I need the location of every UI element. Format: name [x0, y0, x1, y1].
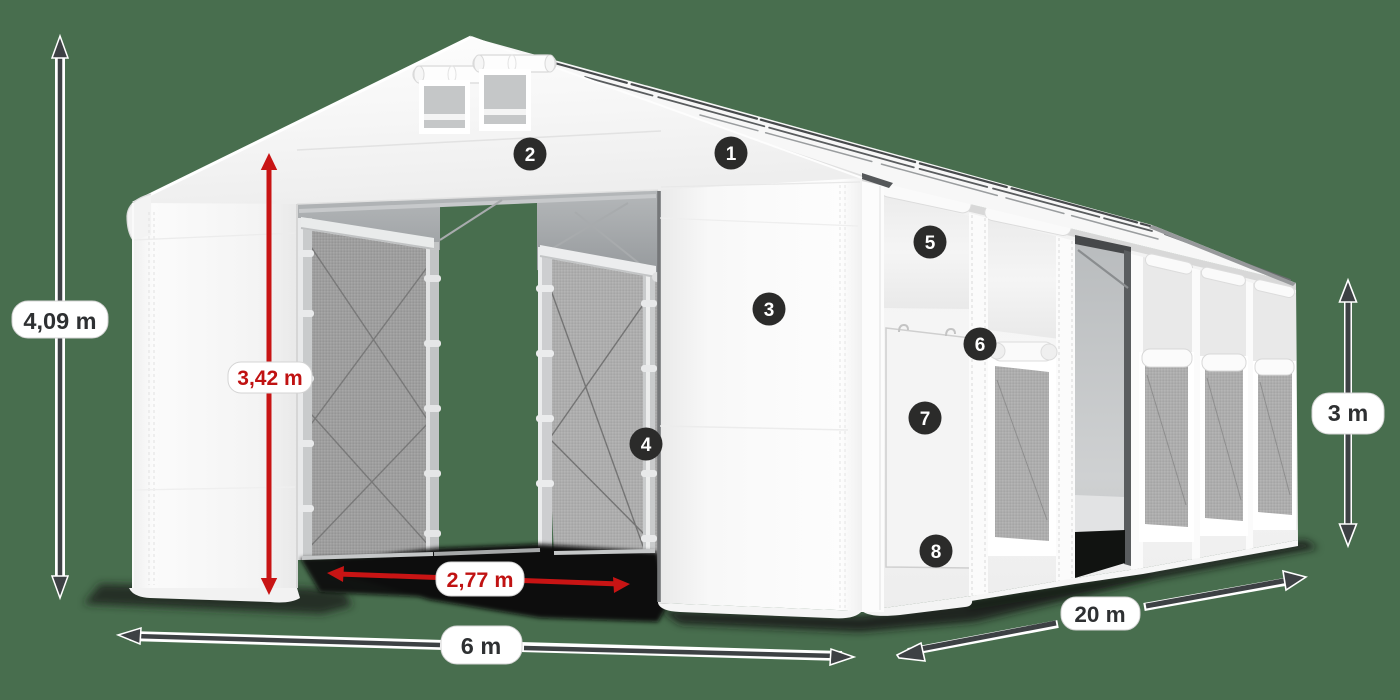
- svg-text:4: 4: [641, 435, 652, 456]
- svg-text:5: 5: [925, 233, 936, 254]
- svg-text:6 m: 6 m: [461, 633, 502, 659]
- svg-text:20 m: 20 m: [1074, 602, 1125, 627]
- svg-text:2,77 m: 2,77 m: [447, 568, 514, 592]
- svg-text:3,42 m: 3,42 m: [237, 367, 302, 390]
- svg-text:8: 8: [931, 542, 942, 563]
- svg-text:3: 3: [764, 300, 775, 321]
- svg-text:2: 2: [525, 145, 536, 166]
- svg-text:7: 7: [920, 409, 931, 430]
- svg-text:3 m: 3 m: [1328, 400, 1369, 426]
- svg-text:1: 1: [726, 144, 737, 165]
- svg-text:4,09 m: 4,09 m: [23, 308, 96, 334]
- svg-text:6: 6: [975, 335, 986, 356]
